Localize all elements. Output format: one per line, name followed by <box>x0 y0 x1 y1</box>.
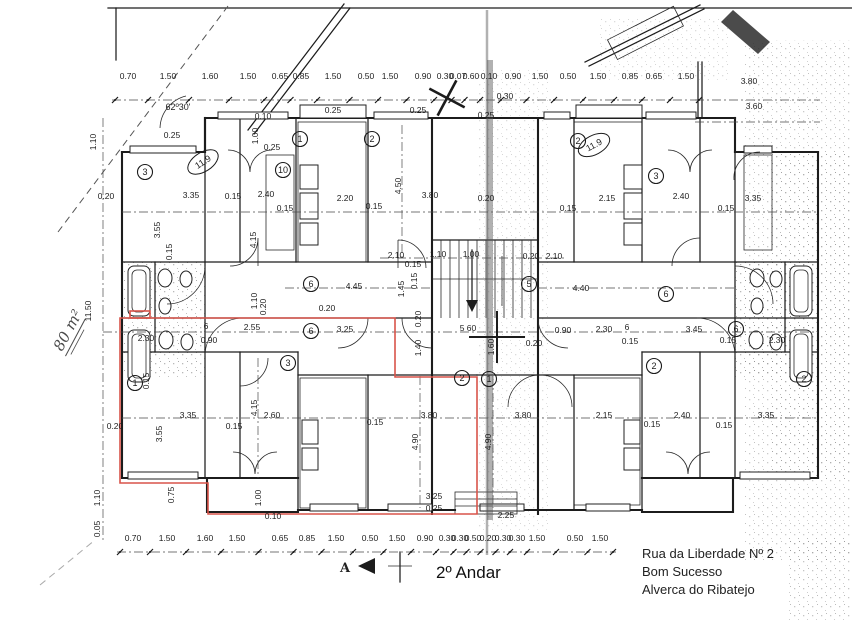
dim-label: 4.15 <box>249 399 259 416</box>
dim-dot <box>612 551 614 553</box>
dim-label: 6 <box>625 322 630 332</box>
dim-dot <box>410 551 412 553</box>
room-badge-number: 3 <box>142 167 147 177</box>
dim-label: 0.20 <box>107 421 124 431</box>
floorplan-drawing: 62º30' <box>0 0 852 620</box>
dim-label: 0.85 <box>293 71 310 81</box>
dim-dot <box>149 551 151 553</box>
dim-label: 1.50 <box>389 533 406 543</box>
dim-dot <box>349 99 351 101</box>
dim-dot <box>555 551 557 553</box>
toilet <box>770 271 782 287</box>
washbasin <box>159 331 173 349</box>
dim-dot <box>495 551 497 553</box>
dim-dot <box>119 551 121 553</box>
dim-label: 0.60 <box>463 71 480 81</box>
dim-label: 1.50 <box>532 71 549 81</box>
dim-label: 0.15 <box>277 203 294 213</box>
dim-label: 4.50 <box>393 177 403 194</box>
dim-dot <box>435 551 437 553</box>
dim-dot <box>406 99 408 101</box>
dim-label: 3.35 <box>180 410 197 420</box>
dim-dot <box>433 99 435 101</box>
dim-label: 2.15 <box>596 410 613 420</box>
kitchen-sink <box>300 193 318 219</box>
dim-label: 0.90 <box>201 335 218 345</box>
windows <box>128 105 810 511</box>
dim-dot <box>114 99 116 101</box>
address-line-1: Rua da Liberdade Nº 2 <box>642 546 774 561</box>
dim-dot <box>526 551 528 553</box>
dim-label: 1.10 <box>430 249 447 259</box>
dim-label: 0.15 <box>367 417 384 427</box>
washbasin <box>158 269 172 287</box>
room-badge-number: 3 <box>653 171 658 181</box>
kitchen-stove <box>300 223 318 245</box>
dim-label: 0.20 <box>478 193 495 203</box>
dim-label: 0.85 <box>622 71 639 81</box>
dim-label: 0.15 <box>405 259 422 269</box>
walls <box>122 118 818 514</box>
dim-label: 0.25 <box>426 503 443 513</box>
dim-label: 0.90 <box>417 533 434 543</box>
dim-label: 3.25 <box>337 324 354 334</box>
section-marker: A <box>339 552 412 582</box>
dim-label: 0.25 <box>164 130 181 140</box>
room-badge-number: 6 <box>308 279 313 289</box>
dim-label: 2.40 <box>674 410 691 420</box>
toilet <box>751 298 763 314</box>
dim-label: 3.80 <box>741 76 758 86</box>
dim-dot <box>480 551 482 553</box>
dim-label: 0.65 <box>646 71 663 81</box>
washbasin <box>749 331 763 349</box>
dim-label: 1.00 <box>250 127 260 144</box>
dim-label: 1.60 <box>197 533 214 543</box>
handwritten-area-note: 80 m² <box>49 306 91 357</box>
dim-label: 1.60 <box>202 71 219 81</box>
dim-label: 0.20 <box>98 191 115 201</box>
dim-label: 0.10 <box>265 511 282 521</box>
dim-label: 0.75 <box>166 486 176 503</box>
toilet <box>181 334 193 350</box>
dim-lines <box>103 100 820 540</box>
dim-dot <box>553 99 555 101</box>
area-label: 80 m² <box>50 306 87 353</box>
dim-label: 4.90 <box>410 433 420 450</box>
address-line-3: Alverca do Ribatejo <box>642 582 755 597</box>
dim-label: 3.35 <box>183 190 200 200</box>
dim-label: 2.15 <box>599 193 616 203</box>
dim-label: 2.40 <box>258 189 275 199</box>
dim-label: 1.10 <box>88 133 98 150</box>
room-badge-number: 2 <box>651 361 656 371</box>
dim-label: 3.60 <box>746 101 763 111</box>
dim-dot <box>698 99 700 101</box>
room-badge-number: 6 <box>663 289 668 299</box>
dim-dot <box>147 99 149 101</box>
kitchen-unit <box>624 420 640 444</box>
dim-label: 0.15 <box>226 421 243 431</box>
dim-label: 0.85 <box>299 533 316 543</box>
dim-label: 2.20 <box>337 193 354 203</box>
kitchen-stove <box>624 223 642 245</box>
washbasin <box>750 269 764 287</box>
dim-label: 4.90 <box>483 433 493 450</box>
room-badge-number: 1 <box>297 134 302 144</box>
dim-label: 1.50 <box>325 71 342 81</box>
dim-label: 1.50 <box>592 533 609 543</box>
dim-label: 0.15 <box>716 420 733 430</box>
dim-label: 0.25 <box>410 105 427 115</box>
scanned-floorplan-page: 62º30' <box>0 0 852 620</box>
dim-label: 0.15 <box>718 203 735 213</box>
dim-label: 2.40 <box>673 191 690 201</box>
dim-dot <box>613 99 615 101</box>
dim-label: 0.15 <box>164 243 174 260</box>
dim-label: 0.70 <box>120 71 137 81</box>
dim-label: 1.00 <box>463 249 480 259</box>
dim-label: 0.90 <box>415 71 432 81</box>
dim-label: 0.50 <box>362 533 379 543</box>
dim-label: 0.50 <box>560 71 577 81</box>
room-badge-number: 1 <box>486 374 491 384</box>
dim-label: 2.10 <box>546 251 563 261</box>
dim-dot <box>188 99 190 101</box>
dim-label: 4.40 <box>573 283 590 293</box>
dim-label: 0.20 <box>526 338 543 348</box>
dim-dot <box>526 99 528 101</box>
dim-label: 0.65 <box>272 71 289 81</box>
dim-label: 0.15 <box>622 336 639 346</box>
dim-dot <box>228 99 230 101</box>
dim-label: 2.30 <box>138 333 155 343</box>
dim-label: 0.65 <box>272 533 289 543</box>
dim-dot <box>316 99 318 101</box>
room-badge-number: 10 <box>278 165 288 175</box>
room-badge-number: 1 <box>132 378 137 388</box>
dim-label: 1.60 <box>486 338 496 355</box>
dim-label: 0.15 <box>366 201 383 211</box>
room-area-value: 11.9 <box>584 137 604 154</box>
dim-label: 6 <box>204 321 209 331</box>
angle-label: 62º30' <box>165 102 190 112</box>
bottom-dim-chain: 0.701.501.601.500.650.851.500.501.500.90… <box>117 533 616 555</box>
dim-dot <box>263 99 265 101</box>
dim-label: 0.05 <box>92 520 102 537</box>
dim-label: 0.15 <box>409 272 419 289</box>
kitchen-sink <box>302 448 318 470</box>
dim-dot <box>479 99 481 101</box>
dim-label: 1.50 <box>229 533 246 543</box>
kitchen-unit <box>300 165 318 189</box>
dim-dot <box>641 99 643 101</box>
room-badge-number: 3 <box>285 358 290 368</box>
hatched-cores <box>124 122 816 508</box>
dim-label: 1.40 <box>413 339 423 356</box>
dim-label: 3.80 <box>515 410 532 420</box>
dim-label: 0.15 <box>560 203 577 213</box>
dim-dot <box>453 551 455 553</box>
dim-dot <box>377 99 379 101</box>
dim-label: 4.15 <box>248 231 258 248</box>
dim-label: 0.70 <box>125 533 142 543</box>
dim-label: 1.45 <box>396 280 406 297</box>
dim-label: 3.45 <box>686 324 703 334</box>
dim-label: 1.50 <box>590 71 607 81</box>
dim-dot <box>582 99 584 101</box>
dim-dot <box>587 551 589 553</box>
floor-title: 2º Andar <box>436 563 501 582</box>
dim-label: 3.55 <box>154 425 164 442</box>
room-badge-number: 6 <box>308 326 313 336</box>
dim-dot <box>669 99 671 101</box>
toilet <box>180 271 192 287</box>
dim-label: 1.00 <box>253 489 263 506</box>
dim-label: 0.50 <box>567 533 584 543</box>
dim-label: 0.10 <box>255 111 272 121</box>
dim-dot <box>352 551 354 553</box>
dim-label: 1.10 <box>92 489 102 506</box>
dim-label: 3.35 <box>745 193 762 203</box>
dim-dot <box>258 551 260 553</box>
room-badge-number: 5 <box>526 279 531 289</box>
room-badge-number: 2 <box>369 134 374 144</box>
dim-dot <box>321 551 323 553</box>
section-arrow-icon <box>358 558 375 574</box>
room-area-value: 11.9 <box>193 153 213 171</box>
dim-label: 0.20 <box>258 298 268 315</box>
dim-label: 0.20 <box>523 251 540 261</box>
room-badge-number: 2 <box>459 373 464 383</box>
dim-label: 0.50 <box>358 71 375 81</box>
dim-label: 0.25 <box>325 105 342 115</box>
dim-label: 0.15 <box>644 419 661 429</box>
dim-label: 0.20 <box>319 303 336 313</box>
dim-label: 3.35 <box>758 410 775 420</box>
kitchen-sink <box>624 193 642 219</box>
dim-label: 0.90 <box>505 71 522 81</box>
bathtub <box>790 266 812 316</box>
dim-dot <box>466 551 468 553</box>
dim-label: 1.50 <box>678 71 695 81</box>
dim-label: 0.10 <box>481 71 498 81</box>
dim-label: 3.25 <box>426 491 443 501</box>
toilet <box>159 298 171 314</box>
dim-label: 2.30 <box>596 324 613 334</box>
address-line-2: Bom Sucesso <box>642 564 722 579</box>
kitchen-sink <box>624 448 640 470</box>
dim-dot <box>290 99 292 101</box>
dim-label: 1.50 <box>159 533 176 543</box>
dim-label: 3.80 <box>421 410 438 420</box>
dim-label: 2.60 <box>264 410 281 420</box>
dim-label: 1.50 <box>240 71 257 81</box>
dim-label: 4.45 <box>346 281 363 291</box>
bathtub <box>128 266 150 316</box>
dim-label: 5 60 <box>460 323 477 333</box>
dim-label: 3.80 <box>422 190 439 200</box>
dim-dot <box>509 551 511 553</box>
dim-label: 0.30 <box>509 533 526 543</box>
dim-label: 3.55 <box>152 221 162 238</box>
dim-label: 0.25 <box>478 110 495 120</box>
dim-label: 2.10 <box>388 250 405 260</box>
dim-label: 0.30 <box>497 91 514 101</box>
dim-label: 1.50 <box>529 533 546 543</box>
dim-label: 1.50 <box>160 71 177 81</box>
dim-label: 0.15 <box>225 191 242 201</box>
kitchen-unit <box>302 420 318 444</box>
dim-dot <box>464 99 466 101</box>
room-badge-number: 2 <box>575 136 580 146</box>
dim-label: 2.25 <box>498 510 515 520</box>
dim-label: 2.30 <box>769 335 786 345</box>
dim-dot <box>293 551 295 553</box>
dim-label: 0.20 <box>413 310 423 327</box>
dim-label: 1.50 <box>328 533 345 543</box>
dim-label: 2.55 <box>244 322 261 332</box>
room-badge-number: 6 <box>733 324 738 334</box>
section-letter: A <box>339 561 351 576</box>
room-badge-number: 2 <box>801 374 806 384</box>
dim-dot <box>220 551 222 553</box>
kitchen-unit <box>624 165 642 189</box>
dim-dot <box>451 99 453 101</box>
dim-dot <box>185 551 187 553</box>
dim-label: 0.90 <box>555 325 572 335</box>
dim-label: 1.50 <box>382 71 399 81</box>
address-block: Rua da Liberdade Nº 2 Bom Sucesso Alverc… <box>642 546 774 597</box>
dim-label: 0.25 <box>264 142 281 152</box>
dim-dot <box>383 551 385 553</box>
